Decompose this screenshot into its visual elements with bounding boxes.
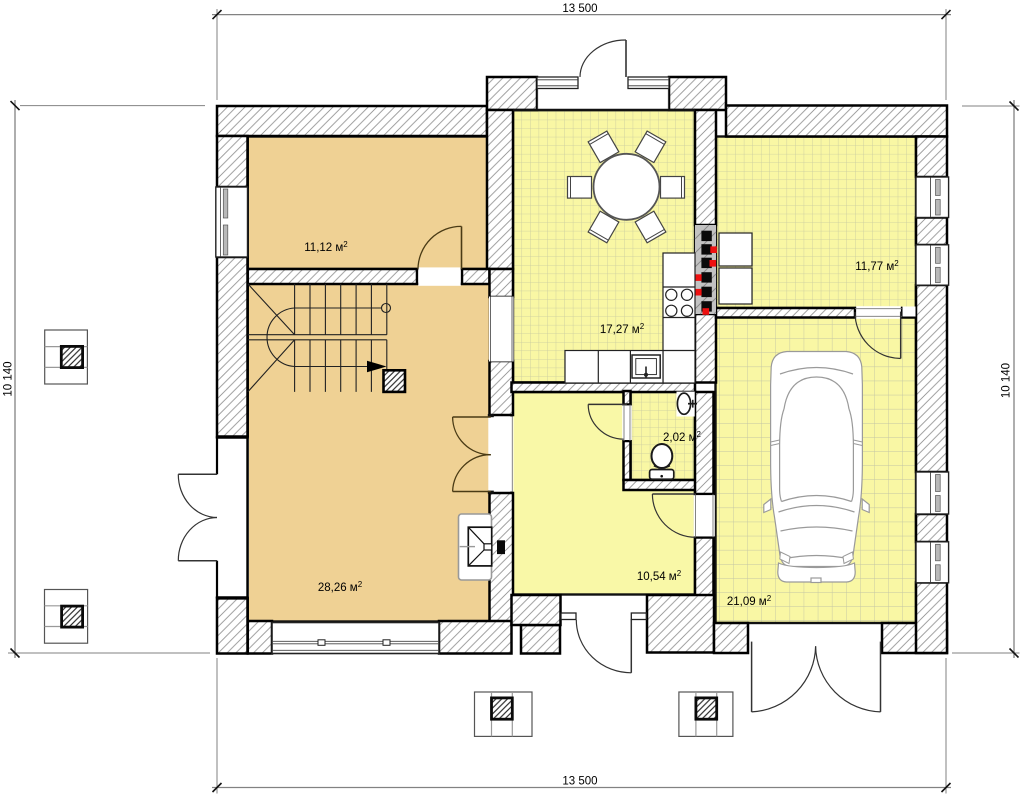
svg-text:21,09 м2: 21,09 м2 bbox=[727, 594, 772, 608]
svg-text:13 500: 13 500 bbox=[562, 3, 597, 15]
svg-text:2,02 м2: 2,02 м2 bbox=[663, 430, 701, 444]
svg-text:10,54 м2: 10,54 м2 bbox=[637, 569, 682, 583]
svg-text:11,77 м2: 11,77 м2 bbox=[855, 259, 899, 273]
svg-text:10 140: 10 140 bbox=[3, 361, 15, 396]
svg-text:10 140: 10 140 bbox=[1001, 363, 1013, 398]
svg-text:28,26 м2: 28,26 м2 bbox=[318, 580, 363, 594]
svg-text:11,12 м2: 11,12 м2 bbox=[304, 240, 348, 254]
svg-text:17,27 м2: 17,27 м2 bbox=[600, 322, 645, 336]
svg-text:13 500: 13 500 bbox=[562, 776, 597, 788]
